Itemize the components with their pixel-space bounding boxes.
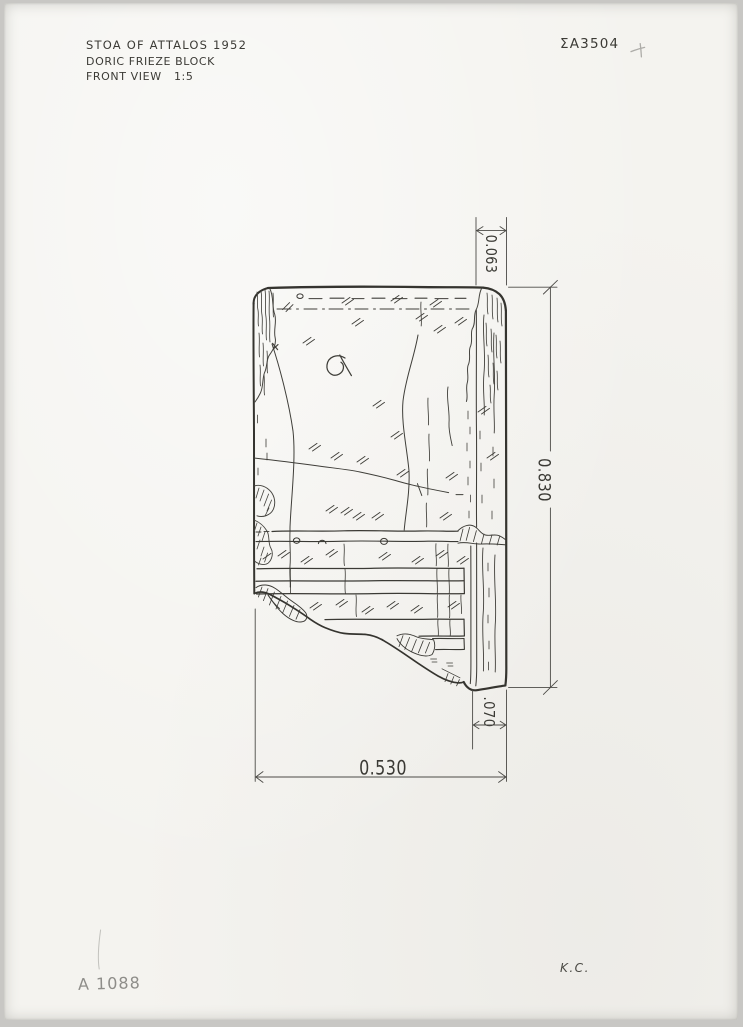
paper-sheet: STOA OF ATTALOS 1952 DORIC FRIEZE BLOCK … — [4, 3, 738, 1020]
scanned-drawing-photo: { "sheet": { "title_block": { "line1": "… — [0, 0, 743, 1024]
broken-corner-hatching — [254, 288, 502, 565]
face-cracks-and-marks — [254, 294, 499, 531]
pencil-marks — [98, 44, 644, 969]
lower-bands-and-grooves — [256, 525, 506, 686]
frieze-block-drawing — [4, 3, 743, 1027]
block-outline — [253, 287, 506, 691]
dimension-lines — [255, 218, 557, 783]
right-return-face — [470, 310, 495, 686]
